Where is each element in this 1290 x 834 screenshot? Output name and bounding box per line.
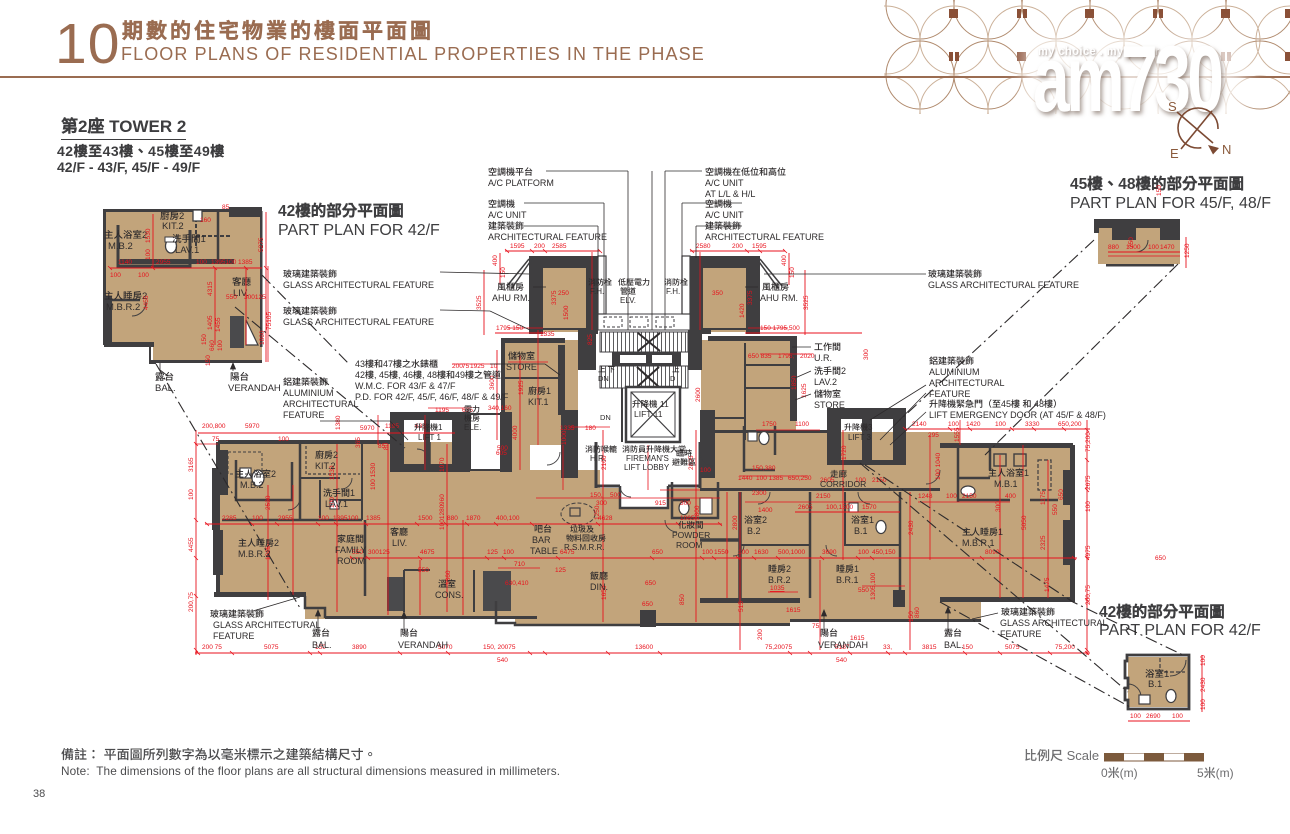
- svg-text:CORRIDOR: CORRIDOR: [820, 479, 866, 489]
- svg-text:650: 650: [1155, 555, 1166, 562]
- svg-text:550: 550: [858, 587, 869, 594]
- svg-text:1795 150: 1795 150: [496, 325, 523, 332]
- svg-text:STORE: STORE: [506, 362, 537, 372]
- svg-text:主人睡房2: 主人睡房2: [238, 538, 279, 548]
- svg-text:1140: 1140: [118, 259, 132, 266]
- svg-text:100: 100: [217, 340, 224, 351]
- svg-text:605: 605: [496, 450, 507, 457]
- svg-text:75: 75: [812, 623, 820, 630]
- svg-text:400: 400: [1005, 493, 1016, 500]
- svg-text:1335: 1335: [540, 331, 555, 338]
- svg-text:陽台: 陽台: [820, 628, 838, 638]
- svg-text:F.H.: F.H.: [666, 287, 680, 296]
- svg-text:150,380: 150,380: [752, 465, 776, 472]
- svg-text:ROOM: ROOM: [337, 556, 365, 566]
- svg-text:100: 100: [252, 515, 263, 522]
- svg-text:2300: 2300: [752, 490, 767, 497]
- svg-text:365: 365: [355, 437, 362, 448]
- svg-text:1420: 1420: [739, 303, 746, 318]
- svg-text:100: 100: [196, 259, 207, 266]
- svg-text:空調機平台: 空調機平台: [488, 167, 533, 177]
- svg-text:4455: 4455: [143, 295, 150, 310]
- svg-text:TABLE: TABLE: [530, 546, 558, 556]
- svg-text:FEATURE: FEATURE: [213, 631, 254, 641]
- svg-text:吧台: 吧台: [534, 524, 552, 534]
- svg-text:W.M.C. FOR 43/F & 47/F: W.M.C. FOR 43/F & 47/F: [355, 381, 456, 391]
- svg-text:75: 75: [212, 436, 220, 443]
- svg-text:150: 150: [500, 267, 507, 278]
- svg-text:ELE.: ELE.: [464, 423, 481, 432]
- svg-text:1195: 1195: [435, 407, 449, 414]
- svg-text:家庭間: 家庭間: [337, 534, 364, 544]
- svg-text:GLASS ARCHITECTURAL FEATURE: GLASS ARCHITECTURAL FEATURE: [928, 280, 1079, 290]
- svg-text:1000: 1000: [561, 430, 568, 445]
- svg-text:VERANDAH: VERANDAH: [818, 640, 868, 650]
- svg-text:1248: 1248: [918, 493, 933, 500]
- svg-text:A/C UNIT: A/C UNIT: [705, 210, 744, 220]
- svg-text:2150: 2150: [962, 493, 977, 500]
- svg-text:低壓電力: 低壓電力: [618, 278, 650, 287]
- svg-text:3375: 3375: [747, 290, 754, 305]
- svg-text:1870: 1870: [466, 515, 481, 522]
- svg-text:100: 100: [995, 421, 1006, 428]
- svg-text:2580: 2580: [696, 243, 711, 250]
- svg-text:200,75: 200,75: [1085, 585, 1092, 605]
- svg-text:3815: 3815: [922, 644, 937, 651]
- svg-text:43樓和47樓之水錶櫃: 43樓和47樓之水錶櫃: [355, 359, 438, 369]
- svg-text:玻璃建築裝飾: 玻璃建築裝飾: [1001, 607, 1055, 617]
- svg-text:100: 100: [700, 467, 711, 474]
- svg-text:1555: 1555: [954, 427, 961, 442]
- svg-text:200,800: 200,800: [202, 423, 226, 430]
- svg-text:300: 300: [680, 500, 691, 507]
- svg-text:臨時: 臨時: [676, 449, 692, 458]
- svg-text:1395100: 1395100: [211, 259, 237, 266]
- svg-text:上: 上: [672, 365, 680, 374]
- svg-text:5970: 5970: [360, 425, 375, 432]
- svg-text:100: 100: [110, 272, 121, 279]
- svg-text:1455: 1455: [215, 317, 222, 332]
- svg-text:工作間: 工作間: [814, 342, 841, 352]
- svg-text:1250: 1250: [1184, 243, 1191, 258]
- svg-text:100 1530: 100 1530: [370, 463, 377, 490]
- svg-text:250: 250: [1128, 237, 1135, 248]
- svg-text:陽台: 陽台: [230, 371, 249, 383]
- svg-text:露台: 露台: [312, 628, 330, 638]
- svg-text:客廳: 客廳: [390, 527, 408, 537]
- svg-text:400,100: 400,100: [496, 515, 520, 522]
- svg-text:150: 150: [201, 334, 208, 345]
- svg-text:B.R.1: B.R.1: [836, 575, 859, 585]
- svg-text:1500: 1500: [418, 515, 433, 522]
- svg-text:LIFT LOBBY: LIFT LOBBY: [624, 463, 670, 472]
- svg-text:鋁建築裝飾: 鋁建築裝飾: [929, 356, 974, 366]
- svg-text:2955: 2955: [156, 259, 171, 266]
- svg-text:2800: 2800: [694, 505, 701, 520]
- svg-text:100: 100: [858, 549, 869, 556]
- svg-text:風櫃房: 風櫃房: [497, 282, 524, 292]
- svg-text:2800: 2800: [732, 515, 739, 530]
- svg-text:100: 100: [1085, 501, 1092, 512]
- svg-text:4455: 4455: [188, 537, 195, 552]
- svg-text:升降機1: 升降機1: [414, 423, 443, 432]
- svg-text:340,160: 340,160: [488, 405, 512, 412]
- svg-text:1305,100: 1305,100: [870, 573, 877, 600]
- svg-text:4975: 4975: [1085, 545, 1092, 560]
- svg-text:5970: 5970: [245, 423, 260, 430]
- svg-text:廚房1: 廚房1: [528, 386, 551, 396]
- svg-text:550: 550: [226, 294, 237, 301]
- svg-text:機房: 機房: [464, 414, 480, 423]
- svg-text:100: 100: [1200, 655, 1207, 666]
- svg-text:650,200: 650,200: [1058, 421, 1082, 428]
- svg-text:100: 100: [948, 421, 959, 428]
- svg-text:5275: 5275: [258, 237, 265, 252]
- svg-text:ARCHITECTURAL FEATURE: ARCHITECTURAL FEATURE: [705, 232, 824, 242]
- svg-text:FEATURE: FEATURE: [929, 389, 970, 399]
- svg-text:150 1795,500: 150 1795,500: [760, 325, 800, 332]
- svg-text:80: 80: [383, 442, 390, 450]
- svg-text:U.R.: U.R.: [814, 353, 832, 363]
- svg-text:D: D: [670, 374, 676, 383]
- svg-text:2955: 2955: [278, 515, 293, 522]
- svg-text:儲物室: 儲物室: [508, 351, 535, 361]
- svg-text:空調機在低位和高位: 空調機在低位和高位: [705, 167, 786, 177]
- svg-text:880: 880: [447, 515, 458, 522]
- svg-text:2140: 2140: [912, 421, 927, 428]
- svg-text:1630: 1630: [754, 549, 769, 556]
- svg-text:75105: 75105: [266, 312, 273, 330]
- svg-text:200 75: 200 75: [202, 644, 222, 651]
- svg-text:650: 650: [1058, 489, 1065, 500]
- svg-text:ARCHITECTURAL: ARCHITECTURAL: [283, 399, 359, 409]
- svg-text:玻璃建築裝飾: 玻璃建築裝飾: [928, 269, 982, 279]
- svg-text:儲物室: 儲物室: [814, 389, 841, 399]
- svg-text:100: 100: [1200, 699, 1207, 710]
- svg-text:1750: 1750: [762, 421, 777, 428]
- svg-text:5050: 5050: [1021, 515, 1028, 530]
- svg-text:100: 100: [503, 549, 514, 556]
- svg-text:100: 100: [702, 549, 713, 556]
- svg-text:消防喉轆: 消防喉轆: [585, 445, 617, 454]
- svg-text:空調機: 空調機: [488, 199, 515, 209]
- svg-text:升降機緊急門（至45樓 和 48樓）: 升降機緊急門（至45樓 和 48樓）: [929, 399, 1062, 409]
- svg-text:浴室1: 浴室1: [851, 515, 874, 525]
- svg-text:風櫃房: 風櫃房: [762, 282, 789, 292]
- svg-text:主人浴室2: 主人浴室2: [104, 229, 147, 241]
- svg-text:FIREMAN'S: FIREMAN'S: [626, 454, 669, 463]
- svg-text:建築裝飾: 建築裝飾: [488, 221, 524, 231]
- svg-text:150, 20075: 150, 20075: [483, 644, 516, 651]
- svg-text:400: 400: [781, 255, 788, 266]
- svg-text:150: 150: [962, 644, 973, 651]
- svg-text:B.R.2: B.R.2: [768, 575, 791, 585]
- svg-text:5075: 5075: [264, 644, 279, 651]
- svg-text:2585: 2585: [552, 243, 567, 250]
- svg-text:升降機3: 升降機3: [844, 423, 873, 432]
- svg-text:200: 200: [534, 243, 545, 250]
- svg-text:180: 180: [585, 425, 596, 432]
- svg-text:1550: 1550: [714, 549, 729, 556]
- svg-text:100 1040: 100 1040: [935, 453, 942, 480]
- svg-text:R.S.M.R.R.: R.S.M.R.R.: [564, 543, 604, 552]
- svg-text:DN: DN: [598, 374, 609, 383]
- svg-text:VERANDAH: VERANDAH: [228, 383, 281, 394]
- svg-text:200,75: 200,75: [188, 592, 195, 612]
- svg-text:2430: 2430: [1200, 677, 1207, 692]
- svg-text:物料回收房: 物料回收房: [566, 534, 606, 543]
- svg-text:STORE: STORE: [814, 400, 845, 410]
- svg-text:660: 660: [209, 340, 216, 351]
- svg-text:100: 100: [318, 515, 329, 522]
- svg-text:M.B.2: M.B.2: [240, 480, 264, 490]
- svg-text:1385: 1385: [366, 515, 381, 522]
- svg-text:1395100: 1395100: [333, 515, 359, 522]
- svg-text:1595: 1595: [510, 243, 525, 250]
- svg-text:2530: 2530: [265, 495, 272, 510]
- svg-text:GLASS ARCHITECTURAL FEATURE: GLASS ARCHITECTURAL FEATURE: [283, 280, 434, 290]
- svg-text:2325: 2325: [1040, 535, 1047, 550]
- svg-text:1380: 1380: [335, 415, 342, 430]
- svg-text:客廳: 客廳: [232, 276, 252, 288]
- svg-text:H.R.: H.R.: [590, 454, 606, 463]
- svg-text:100: 100: [188, 489, 195, 500]
- svg-text:飯廳: 飯廳: [590, 571, 608, 581]
- svg-text:AHU RM.: AHU RM.: [492, 293, 530, 303]
- svg-text:ARCHITECTURAL FEATURE: ARCHITECTURAL FEATURE: [488, 232, 607, 242]
- svg-text:LIV.: LIV.: [392, 538, 407, 548]
- svg-text:500: 500: [610, 492, 621, 499]
- svg-text:洗手間1: 洗手間1: [323, 488, 355, 498]
- svg-text:650: 650: [652, 549, 663, 556]
- svg-text:GLASS ARCHITECTURAL FEATURE: GLASS ARCHITECTURAL FEATURE: [283, 317, 434, 327]
- svg-text:FAMILY: FAMILY: [335, 545, 366, 555]
- svg-text:100: 100: [1148, 244, 1159, 251]
- svg-text:960: 960: [439, 494, 446, 505]
- svg-text:BAR: BAR: [532, 535, 551, 545]
- svg-text:1500: 1500: [563, 305, 570, 320]
- svg-text:150: 150: [1156, 185, 1163, 196]
- svg-text:化妝間: 化妝間: [678, 520, 704, 530]
- svg-text:350: 350: [712, 290, 723, 297]
- svg-text:300: 300: [863, 349, 870, 360]
- svg-text:150: 150: [789, 267, 796, 278]
- svg-text:1405: 1405: [207, 315, 214, 330]
- svg-text:650: 650: [645, 580, 656, 587]
- svg-text:515: 515: [738, 601, 745, 612]
- svg-text:1530: 1530: [145, 228, 152, 243]
- svg-text:500,1000: 500,1000: [778, 549, 805, 556]
- svg-text:走廊: 走廊: [830, 469, 848, 479]
- svg-text:AT L/L & H/L: AT L/L & H/L: [705, 189, 755, 199]
- svg-text:B.2: B.2: [747, 526, 761, 536]
- svg-text:860: 860: [914, 607, 921, 618]
- svg-text:空調機: 空調機: [705, 199, 732, 209]
- svg-text:露台: 露台: [944, 628, 962, 638]
- svg-text:1001280: 1001280: [439, 504, 446, 530]
- svg-text:3165: 3165: [188, 457, 195, 472]
- svg-text:陽台: 陽台: [400, 628, 418, 638]
- svg-text:浴室2: 浴室2: [744, 515, 767, 525]
- svg-text:POWDER: POWDER: [672, 530, 710, 540]
- svg-text:100: 100: [145, 249, 152, 260]
- svg-text:主人睡房1: 主人睡房1: [962, 527, 1003, 537]
- svg-text:A/C UNIT: A/C UNIT: [488, 210, 527, 220]
- svg-text:200: 200: [757, 629, 764, 640]
- svg-text:2430: 2430: [908, 520, 915, 535]
- svg-text:3375: 3375: [551, 290, 558, 305]
- svg-text:廚房2: 廚房2: [315, 450, 338, 460]
- svg-text:125: 125: [555, 567, 566, 574]
- svg-text:FEATURE: FEATURE: [283, 410, 324, 420]
- svg-text:洗手間2: 洗手間2: [814, 366, 846, 376]
- svg-text:3890: 3890: [352, 644, 367, 651]
- svg-text:540: 540: [836, 657, 847, 664]
- svg-text:160: 160: [200, 217, 211, 224]
- svg-text:450,150: 450,150: [872, 549, 896, 556]
- svg-text:LIFT EMERGENCY DOOR (AT 45/F &: LIFT EMERGENCY DOOR (AT 45/F & 48/F): [929, 410, 1106, 420]
- svg-text:電力: 電力: [464, 405, 480, 414]
- svg-text:300125: 300125: [244, 294, 266, 301]
- svg-text:400: 400: [492, 255, 499, 266]
- svg-text:550: 550: [1052, 504, 1059, 515]
- svg-text:玻璃建築裝飾: 玻璃建築裝飾: [283, 306, 337, 316]
- svg-text:M.B.R.2: M.B.R.2: [238, 549, 271, 559]
- svg-text:B.1: B.1: [1148, 679, 1162, 690]
- svg-text:1175: 1175: [1040, 491, 1047, 505]
- svg-text:100: 100: [138, 272, 149, 279]
- svg-text:垃圾及: 垃圾及: [570, 525, 594, 534]
- svg-text:125: 125: [487, 549, 498, 556]
- svg-text:100: 100: [1172, 713, 1183, 720]
- svg-text:VERANDAH: VERANDAH: [398, 640, 448, 650]
- svg-text:1385: 1385: [238, 259, 253, 266]
- svg-text:825: 825: [587, 334, 594, 345]
- svg-text:DIN.: DIN.: [590, 582, 608, 592]
- svg-text:F.H.: F.H.: [590, 287, 604, 296]
- svg-text:75,20075: 75,20075: [765, 644, 792, 651]
- svg-text:B.1: B.1: [854, 526, 868, 536]
- svg-text:100: 100: [278, 436, 289, 443]
- svg-text:540: 540: [497, 657, 508, 664]
- svg-text:KIT.2: KIT.2: [315, 461, 336, 471]
- svg-text:630,410: 630,410: [505, 580, 529, 587]
- svg-text:GLASS ARCHITECTURAL: GLASS ARCHITECTURAL: [1000, 618, 1108, 628]
- svg-text:ALUMINIUM: ALUMINIUM: [283, 388, 334, 398]
- svg-text:4315: 4315: [207, 281, 214, 296]
- svg-text:BAL.: BAL.: [944, 640, 964, 650]
- svg-text:150: 150: [205, 355, 212, 366]
- svg-text:主人浴室1: 主人浴室1: [988, 468, 1029, 478]
- svg-text:13600: 13600: [635, 644, 653, 651]
- svg-text:消防栓: 消防栓: [588, 278, 612, 287]
- svg-text:BAL.: BAL.: [312, 640, 332, 650]
- svg-text:AHU RM.: AHU RM.: [760, 293, 798, 303]
- svg-text:KIT.2: KIT.2: [162, 221, 184, 232]
- svg-text:2150: 2150: [816, 493, 831, 500]
- svg-text:3525: 3525: [476, 295, 483, 310]
- svg-text:75,200: 75,200: [1085, 432, 1092, 452]
- svg-text:850: 850: [679, 594, 686, 605]
- svg-text:100: 100: [738, 549, 749, 556]
- svg-text:LIFT 3: LIFT 3: [848, 433, 872, 442]
- svg-text:M.B.R.2: M.B.R.2: [106, 302, 140, 313]
- svg-text:P.D. FOR 42/F, 45/F, 46/F, 48/: P.D. FOR 42/F, 45/F, 46/F, 48/F & 49/F: [355, 392, 509, 402]
- svg-text:主人睡房2: 主人睡房2: [104, 290, 147, 302]
- svg-text:LIFT 11: LIFT 11: [634, 409, 663, 419]
- svg-text:溫室: 溫室: [438, 579, 456, 589]
- svg-text:2600: 2600: [695, 387, 702, 402]
- svg-text:避難區: 避難區: [672, 458, 696, 467]
- svg-text:1570: 1570: [862, 504, 877, 511]
- svg-text:ROOM: ROOM: [676, 540, 702, 550]
- svg-text:露台: 露台: [155, 371, 174, 383]
- svg-text:LAV.2: LAV.2: [814, 377, 837, 387]
- svg-text:2690: 2690: [1146, 713, 1161, 720]
- svg-text:75,200: 75,200: [1055, 644, 1075, 651]
- svg-text:4675: 4675: [420, 549, 435, 556]
- svg-text:880: 880: [1108, 244, 1119, 251]
- svg-text:ALUMINIUM: ALUMINIUM: [929, 367, 980, 377]
- svg-text:主人浴室2: 主人浴室2: [235, 469, 276, 479]
- svg-text:1400: 1400: [758, 507, 773, 514]
- svg-text:200: 200: [732, 243, 743, 250]
- svg-text:睡房1: 睡房1: [836, 564, 859, 574]
- svg-text:1250: 1250: [594, 505, 601, 520]
- svg-text:M.B.2: M.B.2: [108, 241, 133, 252]
- svg-text:710: 710: [514, 561, 525, 568]
- svg-text:LAV.1: LAV.1: [175, 245, 199, 256]
- svg-text:CONS.: CONS.: [435, 590, 464, 600]
- svg-text:LIFT 1: LIFT 1: [418, 433, 442, 442]
- svg-text:1595: 1595: [752, 243, 767, 250]
- svg-text:LAV.1: LAV.1: [325, 499, 348, 509]
- svg-text:3690: 3690: [822, 549, 837, 556]
- svg-text:2605: 2605: [798, 504, 813, 511]
- svg-text:1720: 1720: [841, 445, 848, 460]
- svg-text:42樓, 45樓, 46樓, 48樓和49樓之管道: 42樓, 45樓, 46樓, 48樓和49樓之管道: [355, 370, 501, 380]
- svg-text:1925: 1925: [518, 380, 525, 395]
- svg-text:KIT.1: KIT.1: [528, 397, 549, 407]
- svg-text:2285: 2285: [222, 515, 237, 522]
- svg-text:1100: 1100: [795, 421, 809, 428]
- svg-text:4000: 4000: [512, 425, 519, 440]
- svg-text:1615: 1615: [786, 607, 801, 614]
- svg-text:2675: 2675: [1085, 475, 1092, 490]
- svg-text:GLASS ARCHITECTURAL: GLASS ARCHITECTURAL: [213, 620, 321, 630]
- svg-text:DN: DN: [600, 413, 611, 422]
- svg-text:1470: 1470: [1160, 244, 1175, 251]
- svg-text:睡房2: 睡房2: [768, 564, 791, 574]
- svg-text:150,: 150,: [590, 492, 603, 499]
- svg-text:洗手間1: 洗手間1: [172, 233, 206, 245]
- svg-text:300125: 300125: [368, 549, 390, 556]
- svg-text:250: 250: [558, 290, 569, 297]
- svg-text:FEATURE: FEATURE: [1000, 629, 1041, 639]
- svg-text:1070: 1070: [439, 457, 446, 472]
- svg-text:33,: 33,: [883, 644, 892, 651]
- svg-text:100: 100: [946, 493, 957, 500]
- svg-text:1035: 1035: [770, 585, 785, 592]
- svg-text:550: 550: [418, 567, 429, 574]
- svg-text:915: 915: [655, 500, 666, 507]
- svg-text:3525: 3525: [803, 295, 810, 310]
- svg-text:650: 650: [642, 601, 653, 608]
- svg-text:300: 300: [995, 501, 1002, 512]
- svg-text:100,1500: 100,1500: [826, 504, 853, 511]
- svg-text:升降機 11: 升降機 11: [632, 399, 669, 409]
- svg-text:M.B.1: M.B.1: [994, 479, 1018, 489]
